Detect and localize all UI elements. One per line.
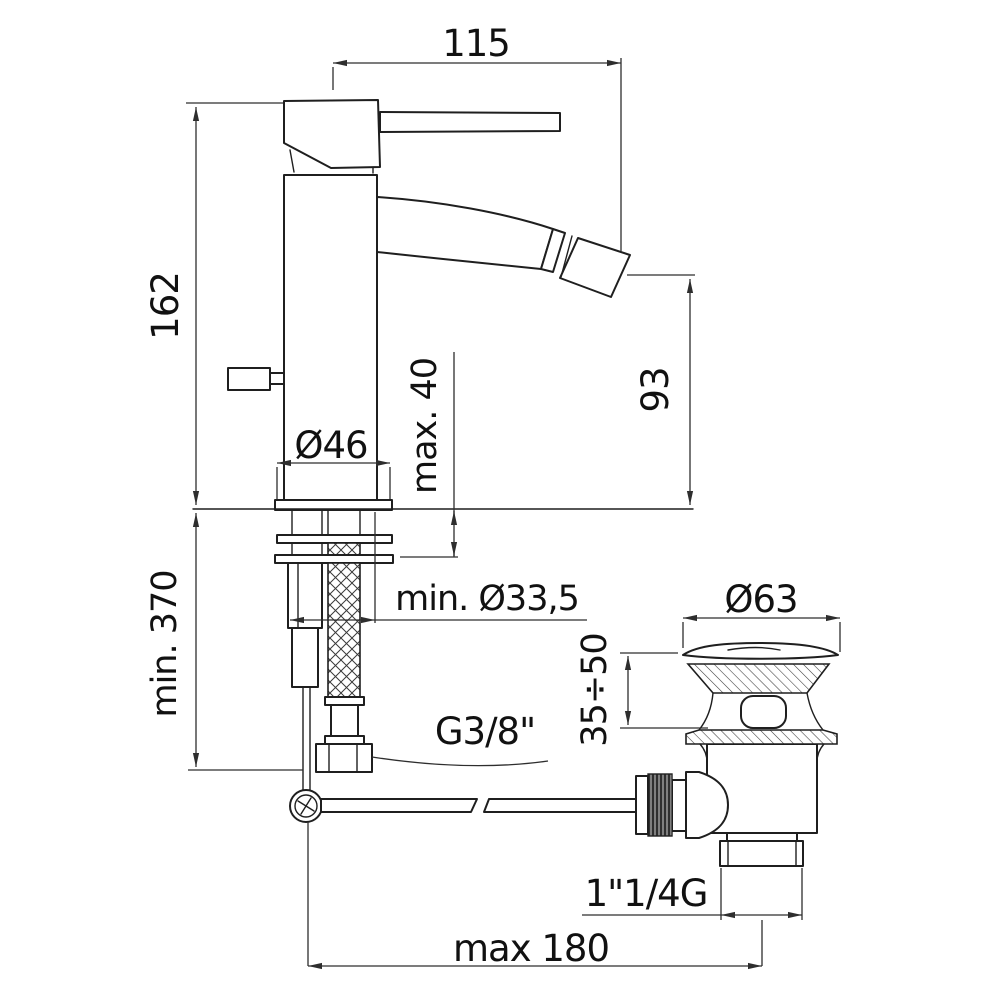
dim-waste-clamp-range-label: 35÷50 — [575, 633, 615, 746]
linkage-rod-right — [484, 799, 638, 812]
drain-knob-collar — [672, 780, 686, 831]
popup-rod-housing-upper — [288, 563, 322, 628]
dim-rod-to-waste-label: max 180 — [453, 927, 609, 970]
mixer-head — [284, 100, 380, 168]
drain-knob-cap — [636, 776, 648, 834]
spout — [377, 197, 553, 269]
technical-drawing-page: 115 162 93 Ø46 max. 40 min. 370 min. Ø33… — [0, 0, 1000, 1000]
linkage-rod-left — [321, 799, 477, 812]
side-knob-stem — [270, 373, 284, 384]
drain-window — [741, 696, 786, 728]
mixer-head-detail-line — [290, 150, 294, 172]
drain-cap-dome — [683, 643, 838, 659]
dim-hose-thread-label: G3/8" — [435, 710, 535, 753]
dim-spout-reach-label: 115 — [442, 22, 510, 65]
side-knob — [228, 368, 270, 390]
drain-lower-rim — [686, 730, 837, 744]
lever-handle — [380, 112, 560, 132]
drain-outlet-neck — [727, 833, 797, 841]
dim-base-diameter-label: Ø46 — [294, 424, 367, 467]
dim-body-height-label: 162 — [144, 272, 187, 340]
braided-hose — [328, 563, 360, 697]
dim-deck-thickness-label: max. 40 — [405, 358, 445, 494]
hose-top-fitting — [328, 543, 360, 555]
popup-rod-housing-lower — [292, 628, 318, 687]
dim-hole-diameter-label: min. Ø33,5 — [395, 579, 579, 619]
drain-knob-knurl — [648, 774, 672, 836]
drain-neck-left — [700, 744, 707, 762]
hose-fitting-ring-upper — [325, 697, 364, 705]
hose-fitting-tube — [331, 705, 358, 736]
drain-upper-cone — [688, 664, 829, 693]
dim-hose-length-label: min. 370 — [145, 570, 185, 717]
hose-nut-g38 — [316, 744, 372, 772]
drain-spool-left — [699, 693, 713, 730]
dim-spout-height-label: 93 — [634, 367, 677, 412]
spout-end-cap — [560, 238, 630, 297]
dim-waste-cap-diameter-label: Ø63 — [724, 578, 797, 621]
drain-spool-right — [807, 693, 823, 730]
hose-fitting-ring-lower — [325, 736, 364, 744]
dim-g38-leader — [372, 757, 548, 766]
dim-waste-thread-label: 1"1/4G — [585, 872, 708, 915]
drain-group — [636, 643, 838, 866]
drain-outlet-pipe — [720, 841, 803, 866]
drain-neck-right — [817, 744, 824, 762]
technical-drawing-svg: 115 162 93 Ø46 max. 40 min. 370 min. Ø33… — [0, 0, 1000, 1000]
